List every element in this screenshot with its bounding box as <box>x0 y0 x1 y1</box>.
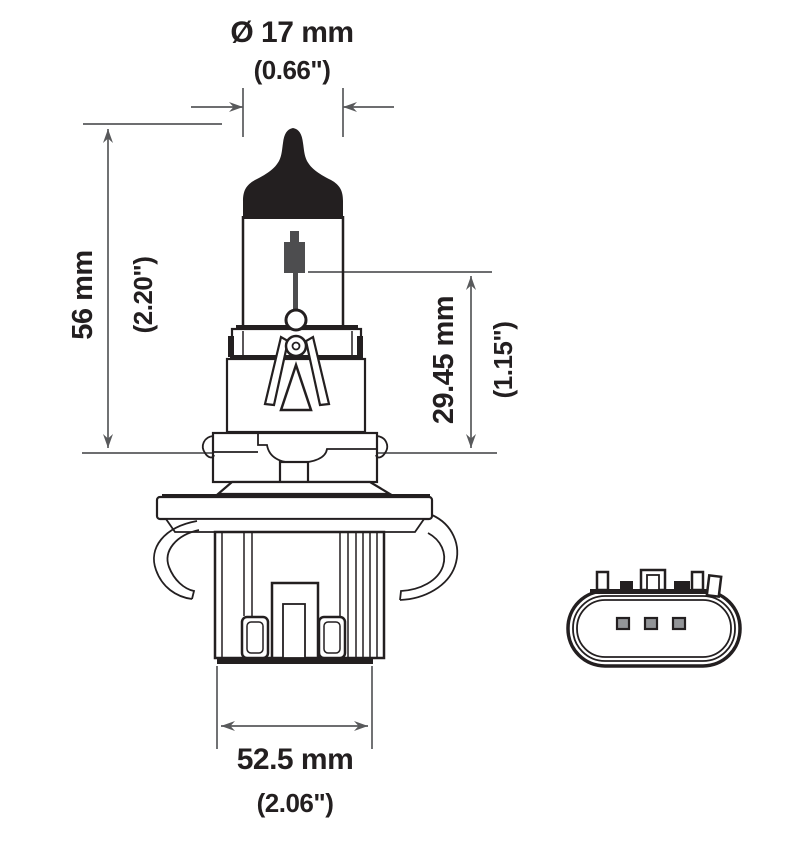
terminal-pins <box>617 618 685 629</box>
bulb-black-tip <box>243 128 343 219</box>
dim-overall-length-imperial: (2.20") <box>128 257 158 334</box>
bulb-front-view <box>154 128 457 664</box>
dim-base-width-imperial: (2.06") <box>257 788 334 818</box>
dim-filament-height-metric: 29.45 mm <box>428 296 460 424</box>
dim-base-width-metric: 52.5 mm <box>237 743 354 776</box>
bulb-technical-drawing: Ø 17 mm (0.66") 56 mm (2.20") 29.45 mm (… <box>0 0 800 843</box>
dim-diameter-imperial: (0.66") <box>254 55 331 85</box>
dim-overall-length-metric: 56 mm <box>67 250 99 339</box>
connector-face-view <box>568 570 740 666</box>
dim-filament-height-imperial: (1.15") <box>488 322 518 399</box>
dim-diameter-metric: Ø 17 mm <box>230 16 353 49</box>
technical-drawing-page: Ø 17 mm (0.66") 56 mm (2.20") 29.45 mm (… <box>0 0 800 843</box>
connector-body <box>215 532 384 664</box>
filament <box>284 231 306 330</box>
flange-ring <box>203 433 387 482</box>
